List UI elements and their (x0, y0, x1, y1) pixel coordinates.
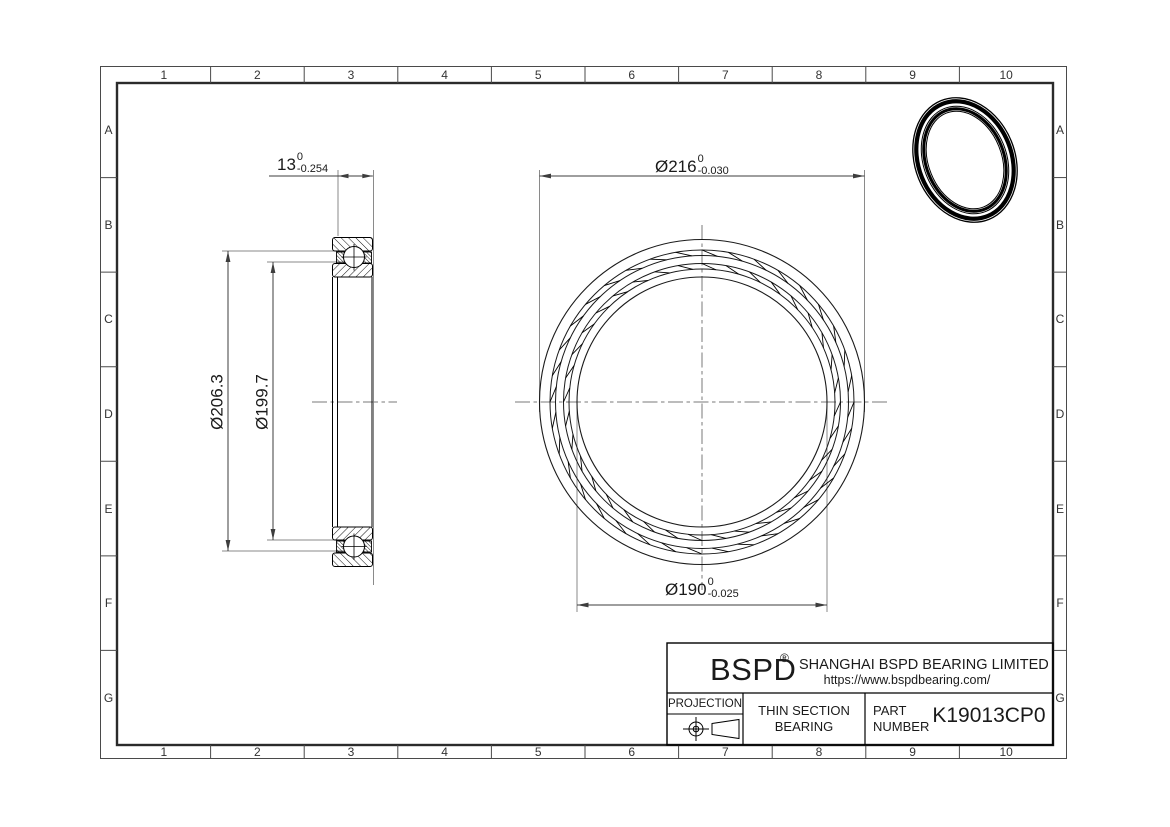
company-website: https://www.bspdbearing.com/ (799, 673, 1015, 687)
projection-label: PROJECTION (667, 698, 743, 710)
grid-label: 9 (866, 66, 960, 83)
grid-label: F (100, 556, 117, 651)
grid-label: E (1053, 461, 1067, 556)
grid-label: 8 (772, 66, 866, 83)
dimension-outer-diameter: Ø216 0 -0.030 (655, 158, 729, 177)
isometric-view (895, 82, 1036, 238)
dimension-lines (226, 174, 865, 608)
grid-label: A (1053, 83, 1067, 178)
grid-label: 8 (772, 744, 866, 759)
grid-label: 7 (679, 66, 773, 83)
dimension-width: 13 0 -0.254 (277, 156, 328, 175)
drawing-canvas (0, 0, 1170, 827)
reference-lines (222, 170, 865, 612)
dimension-od-value: Ø216 (655, 158, 697, 175)
grid-columns-bottom: 12345678910 (117, 744, 1053, 759)
part-number-label: PART NUMBER (873, 703, 929, 735)
grid-label: D (100, 367, 117, 462)
dimension-bore-value: Ø190 (665, 581, 707, 598)
part-label-line1: PART (873, 703, 929, 719)
grid-label: 4 (398, 744, 492, 759)
grid-rows-left: ABCDEFG (100, 83, 117, 745)
grid-columns-top: 12345678910 (117, 66, 1053, 83)
grid-label: D (1053, 367, 1067, 462)
company-name: SHANGHAI BSPD BEARING LIMITED (799, 657, 1049, 673)
grid-label: 5 (491, 744, 585, 759)
dimension-inner-race-value: Ø199.7 (254, 374, 271, 430)
dimension-bore-diameter: Ø190 0 -0.025 (665, 581, 739, 600)
product-name: THIN SECTION BEARING (743, 703, 865, 735)
grid-tick-marks (101, 67, 1067, 759)
registered-mark: ® (780, 651, 789, 665)
dimension-bore-tol-lower: -0.025 (708, 589, 739, 601)
grid-label: 10 (959, 66, 1053, 83)
grid-label: E (100, 461, 117, 556)
dimension-bore-tol-upper: 0 (708, 577, 739, 589)
grid-label: 3 (304, 66, 398, 83)
grid-label: 2 (211, 744, 305, 759)
grid-label: 6 (585, 744, 679, 759)
dimension-outer-race: Ø206.3 (209, 374, 226, 430)
drawing-border (101, 67, 1067, 759)
grid-label: A (100, 83, 117, 178)
grid-label: 10 (959, 744, 1053, 759)
grid-label: 6 (585, 66, 679, 83)
dimension-width-value: 13 (277, 156, 296, 173)
grid-label: 3 (304, 744, 398, 759)
grid-label: 2 (211, 66, 305, 83)
grid-label: B (100, 178, 117, 273)
product-name-line2: BEARING (743, 719, 865, 735)
dimension-outer-race-value: Ø206.3 (209, 374, 226, 430)
part-number-value: K19013CP0 (930, 704, 1048, 728)
grid-label: G (1053, 650, 1067, 745)
grid-label: 1 (117, 66, 211, 83)
grid-label: C (1053, 272, 1067, 367)
projection-symbol-icon (683, 717, 739, 741)
grid-label: B (1053, 178, 1067, 273)
dimension-width-tol-upper: 0 (297, 152, 328, 164)
drawing-sheet: 12345678910 12345678910 ABCDEFG ABCDEFG … (0, 0, 1170, 827)
part-label-line2: NUMBER (873, 719, 929, 735)
center-lines (312, 225, 890, 590)
grid-label: 5 (491, 66, 585, 83)
grid-label: F (1053, 556, 1067, 651)
dimension-width-tol-lower: -0.254 (297, 164, 328, 176)
grid-label: 1 (117, 744, 211, 759)
grid-label: 7 (679, 744, 773, 759)
grid-label: 9 (866, 744, 960, 759)
dimension-inner-race: Ø199.7 (254, 374, 271, 430)
grid-label: C (100, 272, 117, 367)
dimension-od-tol-lower: -0.030 (698, 166, 729, 178)
product-name-line1: THIN SECTION (743, 703, 865, 719)
dimension-od-tol-upper: 0 (698, 154, 729, 166)
grid-label: 4 (398, 66, 492, 83)
grid-rows-right: ABCDEFG (1053, 83, 1067, 745)
grid-label: G (100, 650, 117, 745)
